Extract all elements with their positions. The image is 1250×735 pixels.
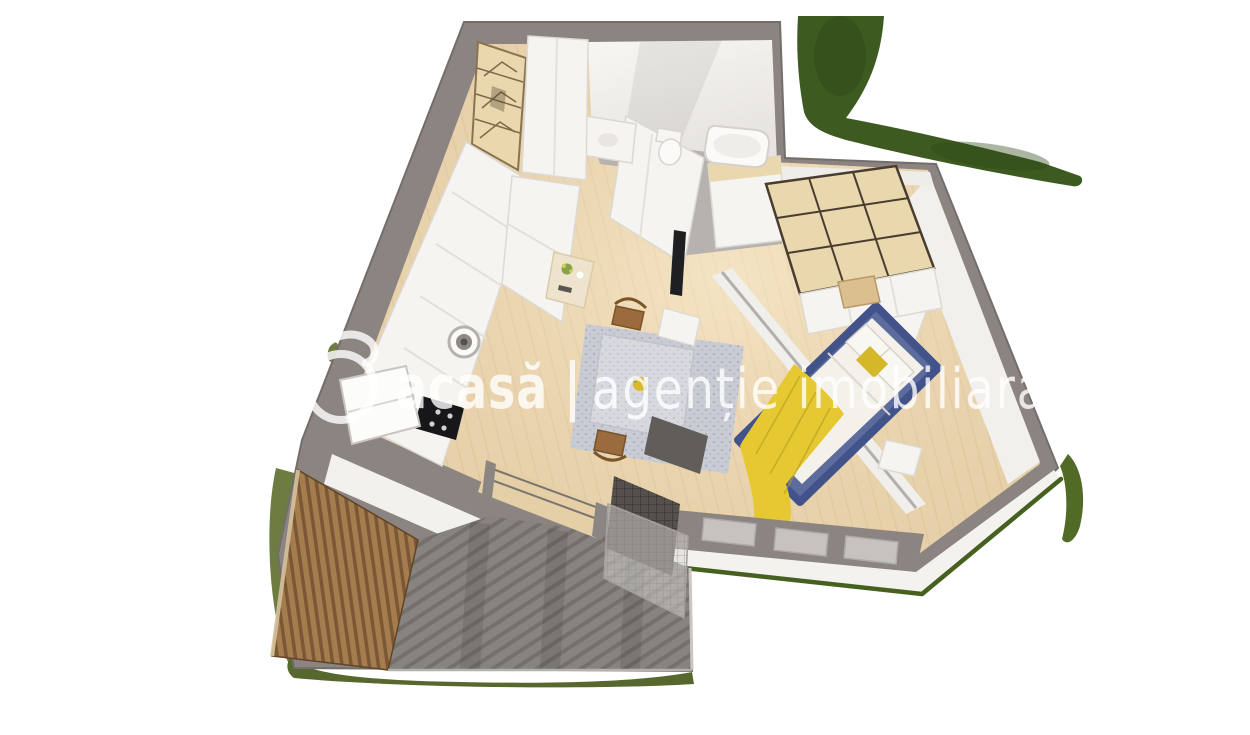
nightstand-wood [838,276,880,308]
apartment-3d-floorplan: acasă | agenție imobiliara [40,16,1250,719]
deck-right-railing [690,568,692,670]
vase [577,272,584,279]
washbasin-counter [582,116,636,163]
terrace [272,460,692,670]
watermark-brand: acasă [396,353,548,423]
watermark-tagline: agenție imobiliara [592,357,1047,422]
watermark-separator: | [562,350,583,424]
grass-right-strip [1060,454,1083,542]
